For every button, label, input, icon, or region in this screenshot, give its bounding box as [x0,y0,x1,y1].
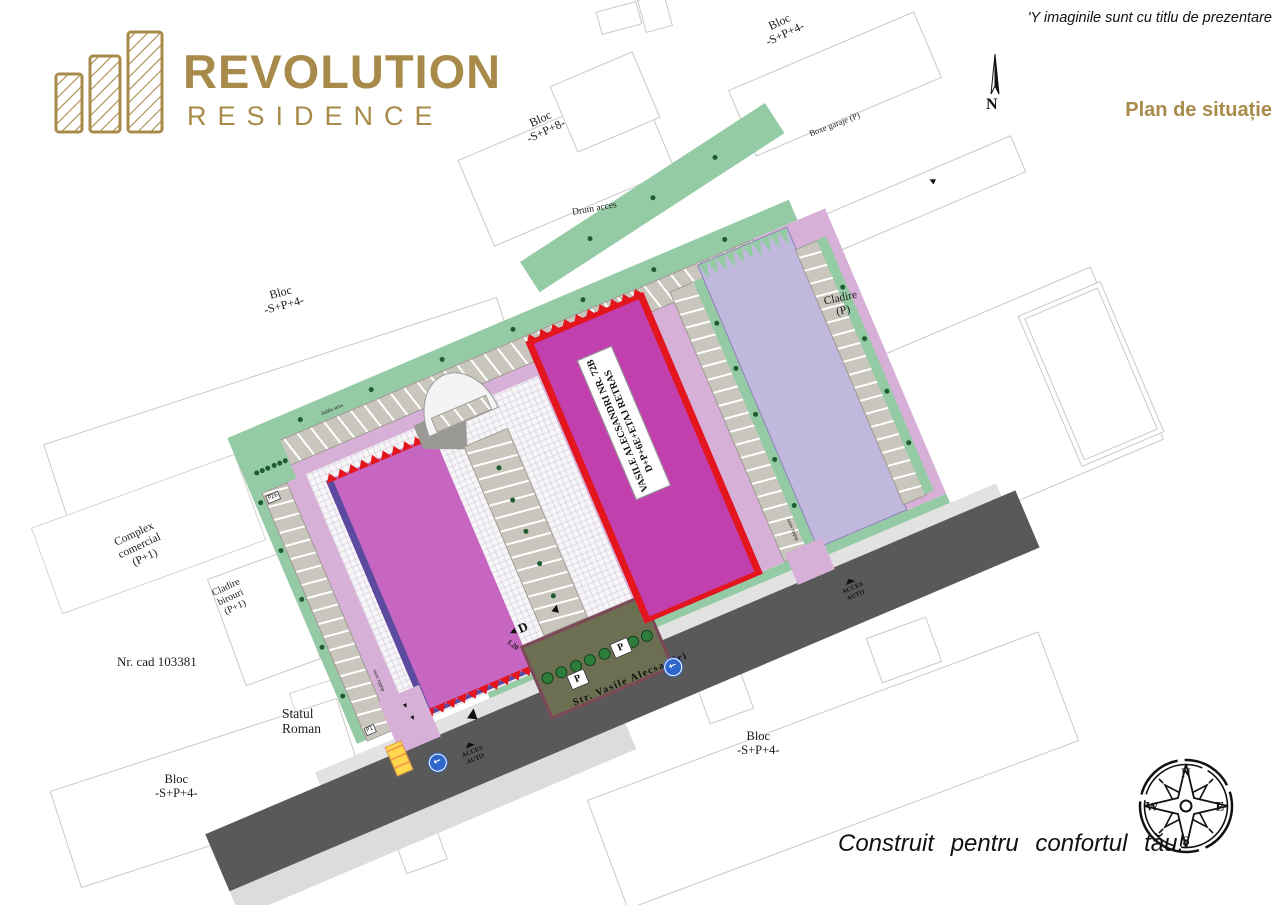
compass-w: W [1146,799,1159,814]
tree-dot [339,692,346,699]
tree-dot [771,456,778,463]
tree-dot [713,320,720,327]
disclaimer-text: 'Y imaginile sunt cu titlu de prezentare [1020,10,1272,26]
outline-small-top-2 [637,0,673,33]
nr-cad-label: Nr. cad 103381 [117,655,197,670]
tree-dot [883,388,890,395]
one-way-arrow-icon-1: ← [432,756,443,768]
tree-dot [495,465,502,472]
logo-title: REVOLUTION [183,44,501,99]
site-plan-canvas: P27 P55 P26 P1 ◀ D 1.20 [0,0,1280,905]
tree-dot [298,596,305,603]
statul-roman-label: StatulRoman [282,706,321,736]
nav-arrow-2: ▲ [548,600,563,615]
tree-dot [721,236,728,243]
tree-dot [277,548,284,555]
tree-dot [580,296,587,303]
tree-dot [265,464,272,471]
tree-dot [509,497,516,504]
tree-dot [596,646,612,662]
outline-small-top-1 [596,1,643,35]
tree-dot [790,502,797,509]
bloc-sp4-left-label: Bloc-S+P+4- [259,281,305,318]
tree-dot [651,266,658,273]
tree-dot [752,411,759,418]
tree-dot [649,194,656,201]
tree-dot [839,284,846,291]
tree-dot [438,356,445,363]
tree-dot [539,670,555,686]
tree-dot [297,416,304,423]
logo-buildings-icon [52,26,182,136]
tree-dot [318,644,325,651]
tree-dot [905,439,912,446]
bloc-sp4-bottom-left-label: Bloc-S+P+4- [155,772,198,800]
north-arrow-icon [982,52,1008,98]
tree-dot [711,154,718,161]
logo-subtitle: RESIDENCE [187,101,444,132]
tree-dot [582,652,598,668]
tree-dot [536,561,543,568]
tree-dot [257,499,264,506]
nav-arrow-1: ▲ [463,703,483,723]
bloc-sp4-bottom-right-label: Bloc-S+P+4- [737,729,780,757]
tree-dot [732,365,739,372]
tree-dot [282,457,289,464]
plan-title: Plan de situație [1040,99,1272,122]
north-label: N [986,96,998,114]
tree-dot [509,326,516,333]
one-way-arrow-icon-2: ← [667,660,678,672]
bloc-sp4-top-label: Bloc-S+P+4- [758,8,806,50]
tree-dot [522,529,529,536]
slogan: Construit pentru confortul tău! [838,830,1184,858]
tree-dot [270,462,277,469]
tree-dot [587,235,594,242]
compass-e: E [1216,799,1225,814]
tree-dot [368,386,375,393]
tree-dot [639,628,655,644]
tree-dot [861,336,868,343]
compass-n: N [1181,765,1191,780]
